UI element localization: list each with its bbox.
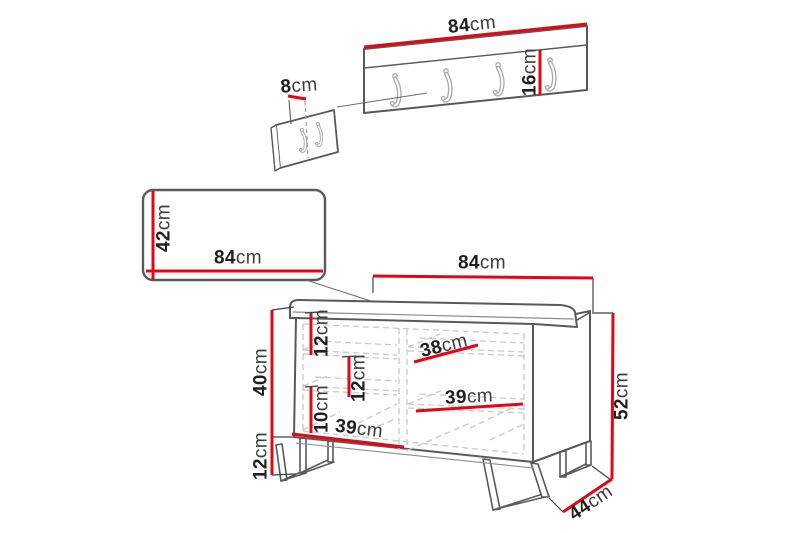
dimension-value: 39 [334, 416, 358, 440]
dimension-value: 12 [251, 458, 272, 480]
dimension-unit: cm [466, 385, 493, 407]
dimension-unit: cm [356, 418, 385, 442]
dimension-label-bench-height: 52cm [613, 372, 632, 420]
dimension-value: 84 [214, 248, 236, 269]
dimension-value: 12 [312, 335, 333, 357]
dimension-unit: cm [154, 204, 175, 230]
diagram-canvas [0, 0, 800, 533]
dimension-unit: cm [349, 354, 370, 380]
dimension-value: 52 [612, 398, 633, 420]
dimension-value: 84 [447, 15, 471, 38]
dimension-unit: cm [236, 248, 262, 269]
mirror-panel-drawing [143, 190, 377, 303]
dimension-label-shelf-right-mid: 39cm [444, 386, 493, 407]
dimension-value: 42 [154, 230, 175, 252]
bench-width-line [373, 276, 593, 278]
dimension-label-bench-width: 84cm [458, 254, 506, 273]
furniture-dimension-diagram: 84cm 16cm 8cm 42cm 84cm 84cm 52cm 44cm 4… [0, 0, 800, 533]
dimension-value: 84 [458, 253, 480, 274]
dimension-label-shelf-gap-top: 12cm [313, 309, 332, 357]
dimension-unit: cm [612, 372, 633, 398]
dimension-value: 16 [520, 74, 541, 96]
dimension-unit: cm [291, 74, 319, 97]
dimension-label-mirror-height: 42cm [155, 204, 174, 252]
dimension-unit: cm [520, 48, 541, 74]
dimension-unit: cm [480, 253, 506, 274]
dimension-label-shelf-gap-low: 10cm [313, 385, 332, 433]
coat-rack-drawing [364, 26, 587, 113]
dimension-value: 40 [251, 374, 272, 396]
dimension-label-bench-leg-height: 12cm [252, 432, 271, 480]
dimension-value: 12 [349, 380, 370, 402]
dimension-label-shelf-gap-mid: 12cm [350, 354, 369, 402]
dimension-value: 39 [444, 387, 467, 409]
dimension-label-mirror-width: 84cm [214, 249, 262, 268]
dimension-unit: cm [251, 348, 272, 374]
dimension-label-rack-height: 16cm [521, 48, 540, 96]
dimension-label-bench-body-height: 40cm [252, 348, 271, 396]
dimension-label-rack-width: 84cm [447, 13, 497, 37]
dimension-unit: cm [312, 385, 333, 411]
dimension-unit: cm [251, 432, 272, 458]
dimension-unit: cm [469, 12, 497, 36]
dimension-label-rack-depth: 8cm [280, 75, 318, 97]
dimension-value: 10 [312, 411, 333, 433]
dimension-unit: cm [312, 309, 333, 335]
